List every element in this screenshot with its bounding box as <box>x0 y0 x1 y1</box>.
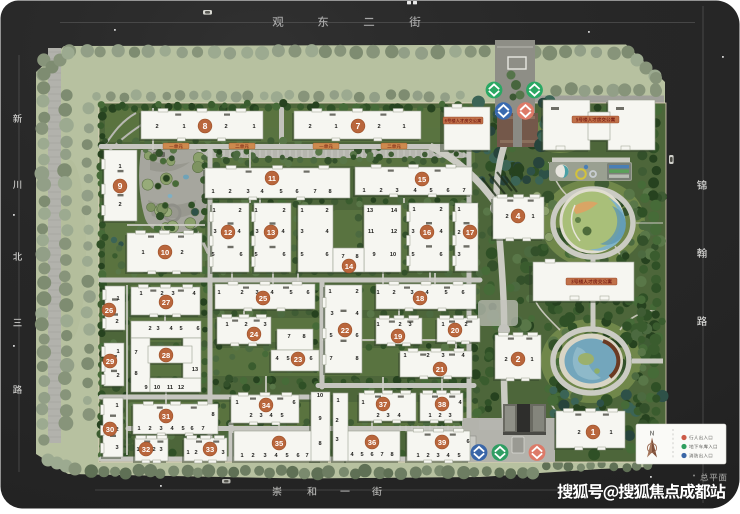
svg-text:2: 2 <box>439 207 442 213</box>
svg-text:1: 1 <box>217 290 220 296</box>
svg-text:2: 2 <box>116 373 119 379</box>
svg-text:12: 12 <box>178 385 184 391</box>
svg-text:7: 7 <box>329 356 332 362</box>
svg-text:9: 9 <box>144 385 147 391</box>
svg-text:1: 1 <box>591 427 596 437</box>
svg-text:3: 3 <box>436 453 439 459</box>
svg-text:1: 1 <box>137 426 140 432</box>
svg-text:5: 5 <box>254 252 257 258</box>
svg-text:1: 1 <box>300 208 303 214</box>
svg-text:2: 2 <box>194 450 197 456</box>
svg-text:10: 10 <box>161 248 169 257</box>
svg-text:3: 3 <box>395 188 398 194</box>
svg-text:2: 2 <box>240 290 243 296</box>
svg-text:1: 1 <box>328 289 331 295</box>
svg-text:13: 13 <box>367 208 373 214</box>
svg-text:6: 6 <box>439 252 442 258</box>
svg-text:38: 38 <box>438 400 446 409</box>
svg-text:9: 9 <box>318 416 321 422</box>
svg-text:8: 8 <box>355 356 358 362</box>
svg-text:1: 1 <box>186 450 189 456</box>
svg-text:2: 2 <box>115 319 118 325</box>
svg-text:5: 5 <box>285 453 288 459</box>
svg-text:6: 6 <box>292 400 295 406</box>
svg-text:5: 5 <box>181 426 184 432</box>
svg-text:7: 7 <box>287 334 290 340</box>
svg-text:7: 7 <box>313 189 316 195</box>
svg-text:2: 2 <box>251 453 254 459</box>
svg-text:1: 1 <box>116 349 119 355</box>
svg-text:5: 5 <box>429 188 432 194</box>
svg-text:3: 3 <box>457 252 460 258</box>
svg-text:2: 2 <box>335 418 338 424</box>
svg-text:1: 1 <box>252 124 255 130</box>
svg-text:21: 21 <box>436 365 445 374</box>
svg-text:6: 6 <box>196 326 199 332</box>
svg-text:1: 1 <box>403 353 406 359</box>
svg-text:8: 8 <box>134 371 137 377</box>
svg-text:10: 10 <box>154 385 160 391</box>
svg-text:1: 1 <box>441 322 444 328</box>
svg-text:2: 2 <box>379 188 382 194</box>
svg-text:31: 31 <box>162 412 171 421</box>
svg-text:2: 2 <box>516 354 521 364</box>
svg-text:2: 2 <box>504 357 507 363</box>
svg-text:7: 7 <box>134 350 137 356</box>
svg-text:6: 6 <box>370 452 373 458</box>
svg-text:1: 1 <box>362 188 365 194</box>
svg-text:6: 6 <box>306 290 309 296</box>
svg-text:1: 1 <box>118 164 121 170</box>
svg-text:2: 2 <box>577 430 580 436</box>
svg-text:1: 1 <box>376 322 379 328</box>
svg-text:3: 3 <box>255 229 258 235</box>
svg-text:1: 1 <box>139 291 142 297</box>
svg-text:2: 2 <box>355 289 358 295</box>
svg-text:6: 6 <box>296 453 299 459</box>
svg-text:11: 11 <box>268 174 277 183</box>
svg-text:3: 3 <box>411 229 414 235</box>
svg-text:17: 17 <box>466 228 474 237</box>
svg-text:2: 2 <box>148 426 151 432</box>
svg-text:8: 8 <box>355 254 358 260</box>
svg-text:6: 6 <box>295 189 298 195</box>
svg-text:25: 25 <box>259 294 268 303</box>
svg-text:7: 7 <box>305 453 308 459</box>
svg-text:5: 5 <box>179 326 182 332</box>
svg-text:1: 1 <box>116 296 119 302</box>
svg-text:2: 2 <box>376 413 379 419</box>
svg-text:2: 2 <box>180 250 183 256</box>
svg-text:1: 1 <box>254 208 257 214</box>
svg-text:29: 29 <box>106 357 114 366</box>
svg-text:2: 2 <box>244 322 247 328</box>
svg-text:37: 37 <box>379 400 387 409</box>
svg-text:1: 1 <box>182 124 185 130</box>
svg-text:6: 6 <box>461 290 464 296</box>
svg-text:3: 3 <box>448 413 451 419</box>
svg-text:6: 6 <box>446 188 449 194</box>
svg-text:24: 24 <box>250 330 259 339</box>
svg-text:1: 1 <box>115 403 118 409</box>
svg-text:2: 2 <box>398 322 401 328</box>
svg-text:3: 3 <box>386 413 389 419</box>
svg-text:5: 5 <box>286 356 289 362</box>
svg-text:5: 5 <box>279 189 282 195</box>
svg-text:1: 1 <box>361 400 364 406</box>
svg-text:5: 5 <box>300 252 303 258</box>
svg-text:35: 35 <box>275 439 284 448</box>
svg-text:1: 1 <box>457 207 460 213</box>
svg-text:13: 13 <box>192 367 198 373</box>
svg-text:8: 8 <box>390 452 393 458</box>
svg-text:2: 2 <box>282 208 285 214</box>
svg-text:1: 1 <box>240 453 243 459</box>
svg-text:1: 1 <box>428 413 431 419</box>
svg-text:14: 14 <box>345 262 354 271</box>
svg-text:9: 9 <box>372 252 375 258</box>
svg-text:3: 3 <box>408 322 411 328</box>
svg-text:7: 7 <box>462 188 465 194</box>
svg-text:2: 2 <box>228 189 231 195</box>
svg-text:3: 3 <box>330 311 333 317</box>
svg-text:5: 5 <box>280 413 283 419</box>
svg-text:8: 8 <box>318 441 321 447</box>
svg-text:1: 1 <box>402 124 405 130</box>
svg-text:3: 3 <box>335 437 338 443</box>
svg-text:6: 6 <box>355 333 358 339</box>
svg-text:7: 7 <box>356 121 361 131</box>
svg-text:30: 30 <box>106 425 114 434</box>
svg-text:11: 11 <box>167 385 173 391</box>
svg-text:1: 1 <box>212 208 215 214</box>
svg-text:6: 6 <box>325 252 328 258</box>
svg-text:8: 8 <box>302 334 305 340</box>
svg-text:5: 5 <box>444 290 447 296</box>
svg-text:3: 3 <box>441 353 444 359</box>
svg-text:12: 12 <box>391 229 397 235</box>
svg-text:3: 3 <box>115 445 118 451</box>
svg-text:3: 3 <box>171 291 174 297</box>
svg-text:2: 2 <box>464 322 467 328</box>
svg-text:3: 3 <box>213 229 216 235</box>
svg-text:27: 27 <box>162 298 170 307</box>
svg-text:13: 13 <box>267 228 275 237</box>
svg-text:2: 2 <box>224 124 227 130</box>
svg-text:2: 2 <box>118 202 121 208</box>
svg-text:34: 34 <box>262 401 271 410</box>
svg-text:10: 10 <box>317 393 323 399</box>
svg-text:1: 1 <box>141 250 144 256</box>
svg-text:5: 5 <box>211 252 214 258</box>
svg-text:1: 1 <box>336 398 339 404</box>
svg-text:1: 1 <box>609 430 612 436</box>
svg-text:3: 3 <box>246 189 249 195</box>
svg-text:3: 3 <box>300 229 303 235</box>
svg-text:16: 16 <box>423 228 431 237</box>
svg-text:26: 26 <box>105 306 113 315</box>
svg-text:3: 3 <box>221 450 224 456</box>
svg-text:2: 2 <box>308 124 311 130</box>
svg-text:1: 1 <box>416 453 419 459</box>
svg-text:3: 3 <box>156 326 159 332</box>
svg-text:39: 39 <box>438 438 446 447</box>
svg-text:14: 14 <box>391 208 398 214</box>
svg-text:36: 36 <box>368 438 376 447</box>
svg-text:1: 1 <box>412 207 415 213</box>
svg-text:33: 33 <box>206 445 214 454</box>
svg-text:3: 3 <box>263 322 266 328</box>
svg-text:6: 6 <box>466 439 469 445</box>
svg-text:1: 1 <box>376 290 379 296</box>
svg-text:2: 2 <box>457 230 460 236</box>
svg-text:1: 1 <box>225 322 228 328</box>
svg-text:5: 5 <box>360 452 363 458</box>
svg-text:15: 15 <box>418 175 427 184</box>
svg-text:1: 1 <box>530 357 533 363</box>
svg-text:3: 3 <box>263 453 266 459</box>
svg-text:2: 2 <box>238 208 241 214</box>
svg-text:3: 3 <box>159 426 162 432</box>
svg-text:1: 1 <box>235 400 238 406</box>
svg-text:2: 2 <box>249 413 252 419</box>
svg-text:2: 2 <box>155 124 158 130</box>
svg-text:2: 2 <box>438 413 441 419</box>
svg-text:6: 6 <box>239 252 242 258</box>
svg-text:2: 2 <box>325 208 328 214</box>
svg-text:11: 11 <box>368 229 374 235</box>
svg-text:20: 20 <box>451 326 459 335</box>
svg-text:19: 19 <box>394 332 402 341</box>
svg-text:6: 6 <box>282 252 285 258</box>
svg-text:1: 1 <box>211 189 214 195</box>
svg-text:8: 8 <box>203 121 208 131</box>
svg-text:22: 22 <box>341 326 349 335</box>
svg-text:1: 1 <box>334 124 337 130</box>
svg-text:2: 2 <box>505 214 508 220</box>
svg-text:2: 2 <box>426 453 429 459</box>
svg-text:5: 5 <box>329 333 332 339</box>
svg-text:2: 2 <box>148 326 151 332</box>
svg-text:10: 10 <box>390 252 396 258</box>
svg-text:6: 6 <box>190 426 193 432</box>
svg-text:8: 8 <box>211 412 214 418</box>
svg-text:8: 8 <box>328 189 331 195</box>
svg-text:18: 18 <box>416 294 424 303</box>
svg-text:9: 9 <box>118 181 123 191</box>
svg-text:28: 28 <box>162 351 170 360</box>
svg-text:4: 4 <box>516 211 521 221</box>
svg-text:32: 32 <box>142 445 150 454</box>
svg-text:6: 6 <box>309 356 312 362</box>
svg-text:7: 7 <box>201 426 204 432</box>
svg-text:3: 3 <box>159 447 162 453</box>
svg-text:1: 1 <box>531 214 534 220</box>
svg-text:5: 5 <box>411 252 414 258</box>
svg-text:12: 12 <box>224 228 232 237</box>
svg-text:7: 7 <box>341 254 344 260</box>
svg-text:2: 2 <box>392 290 395 296</box>
svg-text:3: 3 <box>259 413 262 419</box>
svg-text:5: 5 <box>289 290 292 296</box>
svg-text:5: 5 <box>457 453 460 459</box>
svg-text:2: 2 <box>426 353 429 359</box>
svg-text:2: 2 <box>377 124 380 130</box>
svg-text:23: 23 <box>294 355 302 364</box>
svg-text:3: 3 <box>410 290 413 296</box>
svg-text:7: 7 <box>380 452 383 458</box>
